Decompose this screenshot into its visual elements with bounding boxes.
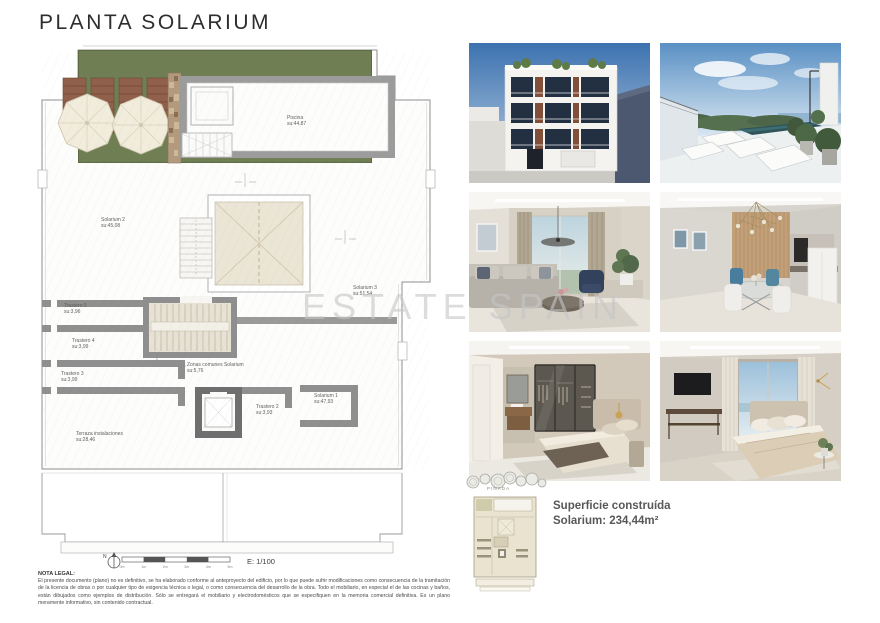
- skylight: [208, 195, 310, 292]
- room-label-trastero5: Trastero 5su:3,96: [64, 303, 87, 316]
- surface-summary-title: Superficie construída: [553, 499, 671, 514]
- photo-grid: [469, 43, 841, 481]
- legal-note-body: El presente documento (plano) no es defi…: [38, 578, 450, 608]
- bedroom-1-render: [469, 341, 650, 481]
- svg-text:3m: 3m: [184, 565, 189, 569]
- room-label-trastero2: Trastero 2su:3,93: [256, 404, 279, 417]
- surface-summary-value: Solarium: 234,44m²: [553, 514, 671, 529]
- room-label-solarium3: Solarium 3su:51,54: [353, 285, 377, 298]
- surface-summary: Superficie construída Solarium: 234,44m²: [553, 499, 671, 529]
- floor-plan-drawing: N 0m 1m 2m 3m 4m 5m E: 1/100: [35, 42, 455, 572]
- brochure-page: PLANTA SOLARIUM: [0, 0, 880, 623]
- room-label-trastero3: Trastero 3su:3,99: [61, 371, 84, 384]
- photo-living-room: [469, 192, 650, 332]
- room-label-solarium2: Solarium 2su:45,08: [101, 217, 125, 230]
- living-room-render: [469, 192, 650, 332]
- building-facade-render: [469, 43, 650, 183]
- page-title: PLANTA SOLARIUM: [39, 11, 271, 35]
- site-plan-thumbnail: [472, 493, 542, 593]
- photo-bedroom-2: [660, 341, 841, 481]
- room-label-trastero4: Trastero 4su:3,99: [72, 338, 95, 351]
- north-compass-icon: N: [103, 552, 120, 568]
- room-label-piscina: Piscinasu:44,87: [287, 115, 306, 128]
- site-plan-label: PINADA: [487, 486, 510, 491]
- photo-roof-terrace: [660, 43, 841, 183]
- legal-note-heading: NOTA LEGAL:: [38, 571, 450, 577]
- scale-bar: 0m 1m 2m 3m 4m 5m E: 1/100: [120, 557, 275, 569]
- photo-dining-room: [660, 192, 841, 332]
- lower-terrace-band: [42, 473, 402, 553]
- legal-note: NOTA LEGAL: El presente documento (plano…: [38, 571, 450, 608]
- room-label-zonas-comunes: Zonas comunes Solariumsu:5,76: [187, 362, 244, 375]
- stone-strip: [168, 73, 181, 163]
- photo-building-facade: [469, 43, 650, 183]
- svg-text:2m: 2m: [163, 565, 168, 569]
- svg-text:5m: 5m: [228, 565, 233, 569]
- scale-label: E: 1/100: [247, 557, 275, 566]
- dining-room-render: [660, 192, 841, 332]
- stair-core: [143, 296, 237, 358]
- bedroom-2-render: [660, 341, 841, 481]
- svg-text:0m: 0m: [120, 565, 125, 569]
- room-label-terraza: Terraza instalacionessu:28,46: [76, 431, 123, 444]
- dividing-wall: [237, 317, 397, 324]
- elevator: [195, 387, 242, 438]
- roof-terrace-render: [660, 43, 841, 183]
- north-label: N: [103, 554, 107, 560]
- staircase-upper: [180, 218, 212, 278]
- svg-text:4m: 4m: [206, 565, 211, 569]
- room-label-solarium1: Solarium 1su:47,93: [314, 393, 338, 406]
- floor-plan: N 0m 1m 2m 3m 4m 5m E: 1/100 Piscinasu:4…: [35, 42, 455, 572]
- photo-bedroom-1: [469, 341, 650, 481]
- svg-text:1m: 1m: [141, 565, 146, 569]
